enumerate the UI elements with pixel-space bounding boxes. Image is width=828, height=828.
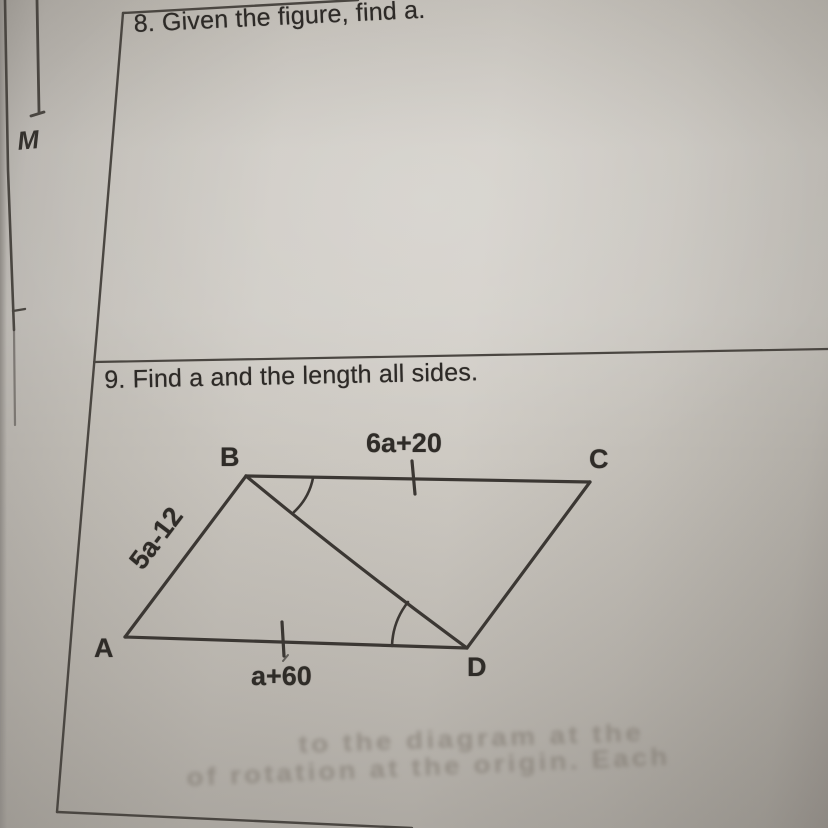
angle-arc-b	[294, 478, 313, 512]
table-left-border	[57, 13, 123, 812]
tick-mark-bc	[412, 461, 415, 494]
paper-edge-line	[5, 0, 14, 330]
worksheet-lines	[0, 0, 828, 828]
angle-arc-d	[392, 602, 408, 646]
bracket-foot-tick	[31, 112, 44, 116]
side-cd	[467, 482, 590, 648]
tick-mark-ad	[282, 622, 284, 656]
box-borders	[57, 0, 828, 828]
vertex-label-b: B	[220, 442, 240, 473]
diagonal-bd	[246, 476, 467, 648]
side-label-bc: 6a+20	[366, 428, 442, 459]
vertex-label-d: D	[467, 652, 487, 683]
question9-figure	[125, 461, 590, 661]
side-bc	[246, 476, 590, 482]
side-label-ad: a+60	[251, 661, 312, 692]
worksheet-photo: 8. Given the figure, find a. 9. Find a a…	[0, 0, 828, 828]
side-ad	[125, 637, 467, 648]
vertex-label-a: A	[94, 633, 114, 664]
margin-artifacts	[5, 0, 44, 425]
paper-edge-line-fade	[14, 330, 15, 425]
box9-bottom-border	[57, 812, 412, 828]
vertex-label-c: C	[589, 444, 609, 475]
bracket-line	[37, 0, 39, 112]
paper-edge-tick	[13, 309, 25, 311]
margin-letter: M	[16, 124, 40, 157]
